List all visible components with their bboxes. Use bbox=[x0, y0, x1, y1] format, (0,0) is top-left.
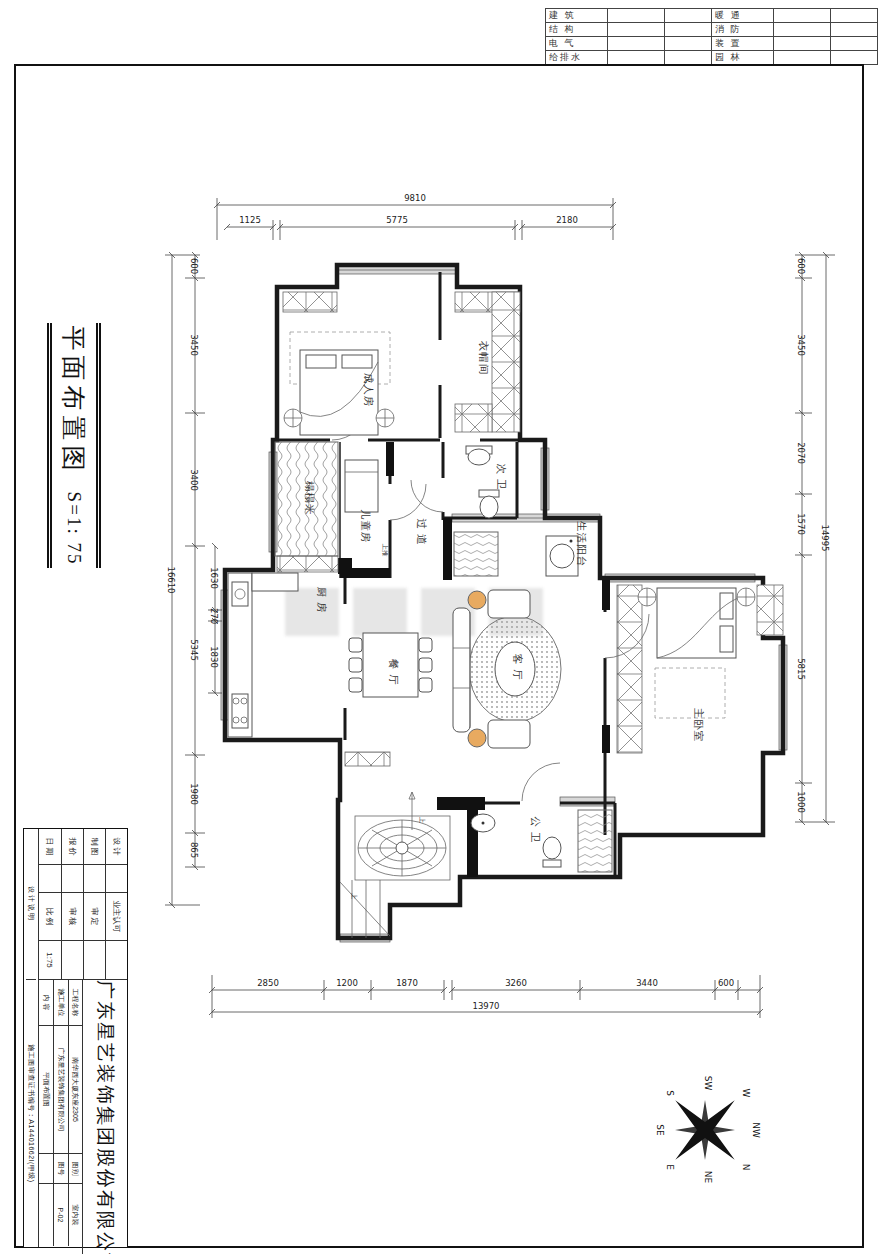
field-label: 日 期 bbox=[39, 829, 61, 865]
field-label: 图号 bbox=[53, 1154, 67, 1184]
discipline-label: 给排水 bbox=[546, 51, 608, 65]
up-annotation: 上 bbox=[351, 893, 358, 900]
svg-text:1000: 1000 bbox=[796, 791, 806, 813]
svg-text:5345: 5345 bbox=[189, 639, 199, 661]
svg-text:1200: 1200 bbox=[336, 978, 358, 988]
room-label-balcony: 生活阳台 bbox=[576, 521, 588, 567]
title-block-details: 工程名称南华西大厦东座2305图别室内装 施工单位广东星艺装饰集团有限公司图号P… bbox=[39, 980, 82, 1254]
kids-bed bbox=[345, 460, 378, 512]
svg-text:N: N bbox=[741, 1164, 751, 1171]
field-label: 施工单位 bbox=[53, 980, 67, 1026]
title-block: 设 计业主认可 制 图审 定 报 价审 核 日 期比 例1:75 广东星艺装饰集… bbox=[23, 828, 128, 1248]
room-label-master: 主卧室 bbox=[693, 708, 705, 743]
svg-text:865: 865 bbox=[189, 842, 199, 858]
room-label-adult: 成人房 bbox=[363, 373, 375, 408]
field-label: 审 核 bbox=[61, 893, 83, 941]
svg-text:13970: 13970 bbox=[472, 1001, 499, 1011]
stairs bbox=[340, 792, 415, 938]
discipline-label: 园 林 bbox=[712, 51, 774, 65]
up-annotation: 上 bbox=[419, 817, 426, 824]
sheet-scale: S=1: 75 bbox=[63, 492, 85, 566]
svg-text:1980: 1980 bbox=[189, 783, 199, 805]
svg-text:2850: 2850 bbox=[257, 978, 279, 988]
discipline-label: 消 防 bbox=[712, 23, 774, 37]
content-name: 平面布置图 bbox=[39, 1026, 53, 1154]
field-label: 报 价 bbox=[61, 829, 83, 865]
svg-text:E: E bbox=[665, 1164, 675, 1170]
company-name: 广东星艺装饰集团股份有限公司 bbox=[82, 980, 127, 1254]
room-label-cloak: 衣帽间 bbox=[478, 341, 490, 376]
sheet-title-strip: 平面布置图 S=1: 75 bbox=[47, 323, 101, 568]
discipline-table: 建 筑 暖 通 结 构 消 防 电 气 装 置 给排水 园 林 bbox=[545, 8, 878, 65]
svg-text:9810: 9810 bbox=[404, 193, 426, 203]
svg-text:SW: SW bbox=[703, 1076, 713, 1091]
living-room-set bbox=[453, 590, 561, 748]
room-label-tatami: 榻榻米 bbox=[304, 481, 316, 516]
svg-text:W: W bbox=[741, 1089, 751, 1098]
svg-text:3260: 3260 bbox=[505, 978, 527, 988]
compass-rose: N NE E SE S SW W NW bbox=[635, 1055, 775, 1205]
svg-text:600: 600 bbox=[718, 978, 734, 988]
svg-text:NW: NW bbox=[751, 1122, 761, 1138]
svg-text:3440: 3440 bbox=[636, 978, 658, 988]
svg-text:1830: 1830 bbox=[209, 646, 219, 668]
entry-medallion bbox=[355, 816, 450, 880]
svg-text:NE: NE bbox=[703, 1171, 713, 1184]
svg-text:3400: 3400 bbox=[189, 469, 199, 491]
room-label-bath2: 次 卫 bbox=[496, 464, 508, 491]
discipline-label: 建 筑 bbox=[546, 9, 608, 23]
svg-text:5815: 5815 bbox=[796, 658, 806, 680]
svg-text:1870: 1870 bbox=[396, 978, 418, 988]
field-label: 内 容 bbox=[39, 980, 53, 1026]
room-label-corridor: 过 道 bbox=[416, 519, 428, 546]
room-label-kitchen: 厨 房 bbox=[316, 587, 328, 614]
master-bed bbox=[638, 588, 755, 718]
room-label-pubbath: 公 卫 bbox=[530, 817, 542, 844]
discipline-label: 装 置 bbox=[712, 37, 774, 51]
field-label: 业主认可 bbox=[105, 893, 127, 941]
slide-annotation: 上推 bbox=[382, 544, 389, 558]
field-label: 工程名称 bbox=[68, 980, 82, 1026]
svg-text:2180: 2180 bbox=[556, 215, 578, 225]
svg-text:600: 600 bbox=[189, 258, 199, 274]
title-block-signoff: 设 计业主认可 制 图审 定 报 价审 核 日 期比 例1:75 bbox=[39, 829, 127, 980]
svg-text:2070: 2070 bbox=[796, 442, 806, 464]
adult-bed bbox=[284, 332, 394, 435]
kitchen-counter bbox=[228, 573, 298, 737]
builder-name: 广东星艺装饰集团有限公司 bbox=[53, 1026, 67, 1154]
field-label: 制 图 bbox=[83, 829, 105, 865]
sheet-title: 平面布置图 bbox=[58, 326, 91, 476]
room-label-dining: 餐 厅 bbox=[388, 659, 400, 686]
svg-text:1630: 1630 bbox=[209, 567, 219, 589]
svg-text:600: 600 bbox=[796, 258, 806, 274]
discipline-label: 暖 通 bbox=[712, 9, 774, 23]
floor-plan: 成人房 衣帽间 榻榻米 儿童房 次 卫 过 道 生活阳台 厨 房 餐 厅 客 厅… bbox=[150, 180, 860, 1040]
svg-text:3450: 3450 bbox=[796, 334, 806, 356]
svg-text:1125: 1125 bbox=[239, 215, 261, 225]
sheet-number: P-02 bbox=[53, 1184, 67, 1246]
scale-value: 1:75 bbox=[39, 941, 61, 979]
svg-text:S: S bbox=[665, 1090, 675, 1096]
project-name: 南华西大厦东座2305 bbox=[68, 1026, 82, 1154]
second-bath-fixtures bbox=[466, 446, 499, 518]
field-label: 审 定 bbox=[83, 893, 105, 941]
svg-text:5775: 5775 bbox=[386, 215, 408, 225]
svg-text:3450: 3450 bbox=[189, 334, 199, 356]
svg-text:SE: SE bbox=[655, 1124, 665, 1136]
field-label: 设 计 bbox=[105, 829, 127, 865]
svg-text:16610: 16610 bbox=[166, 566, 176, 593]
room-label-living: 客 厅 bbox=[512, 654, 524, 681]
room-label-kids: 儿童房 bbox=[360, 509, 372, 544]
certificate-number: 施工图审查证书编号：A14401662I(甲级) bbox=[27, 980, 37, 1247]
drawing-sheet: 建 筑 暖 通 结 构 消 防 电 气 装 置 给排水 园 林 bbox=[0, 0, 878, 1254]
svg-text:270: 270 bbox=[209, 608, 219, 624]
discipline-label: 电 气 bbox=[546, 37, 608, 51]
field-label: 比 例 bbox=[39, 893, 61, 941]
design-notes-label: 设计说明 bbox=[27, 829, 37, 980]
discipline-label: 结 构 bbox=[546, 23, 608, 37]
field-label: 图别 bbox=[68, 1154, 82, 1184]
svg-text:14995: 14995 bbox=[820, 524, 830, 551]
balcony-fixtures bbox=[454, 532, 578, 576]
svg-text:1570: 1570 bbox=[796, 513, 806, 535]
